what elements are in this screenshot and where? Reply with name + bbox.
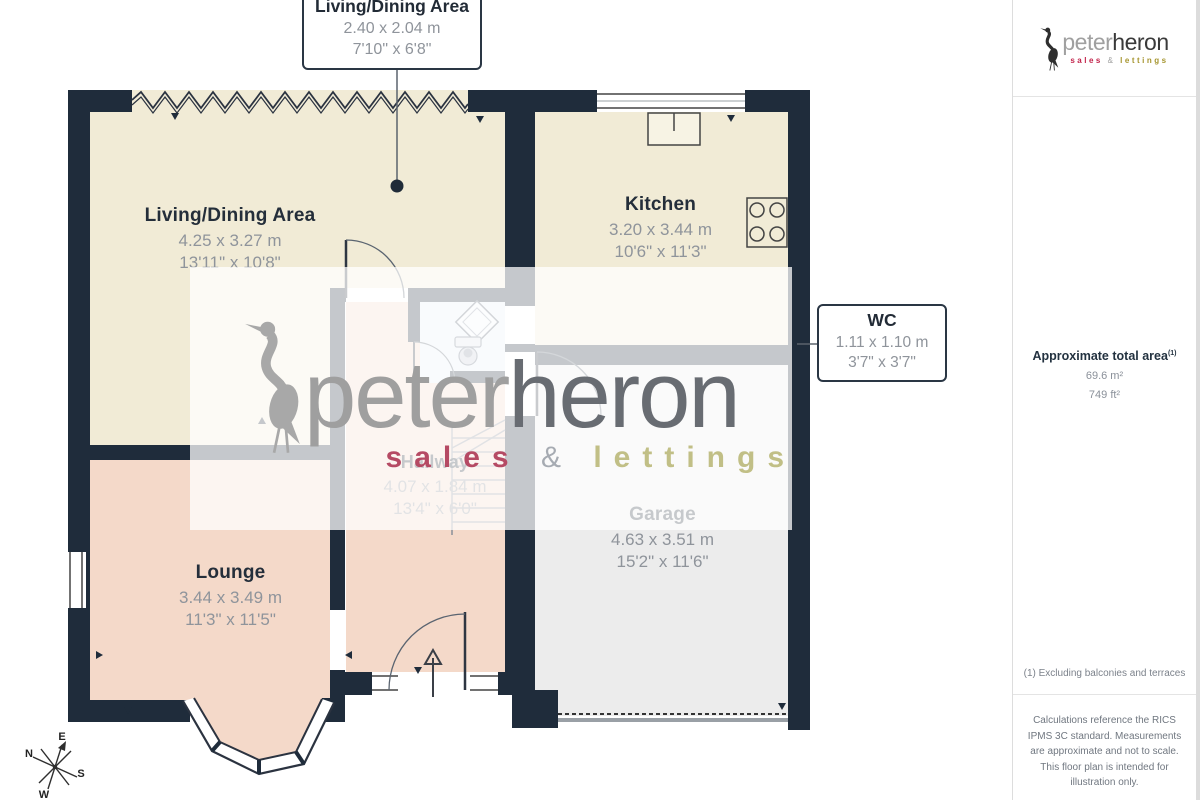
- heron-logo-icon: [1040, 25, 1059, 71]
- disclaimer-text: Calculations reference the RICS IPMS 3C …: [1021, 713, 1189, 791]
- kitchen-window: [597, 90, 745, 112]
- total-area-block: Approximate total area(1) 69.6 m² 749 ft…: [1013, 97, 1196, 652]
- room-label-lounge: Lounge 3.44 x 3.49 m 11'3" x 11'5": [118, 562, 343, 632]
- kitchen-title: Kitchen: [558, 194, 763, 216]
- lounge-imperial: 11'3" x 11'5": [118, 609, 343, 631]
- garage-imperial: 15'2" x 11'6": [570, 551, 755, 573]
- leader-dot: [391, 180, 404, 193]
- lounge-window: [66, 552, 86, 608]
- page-edge: [1196, 0, 1200, 800]
- compass-e: E: [58, 731, 65, 743]
- room-label-living: Living/Dining Area 4.25 x 3.27 m 13'11" …: [105, 205, 355, 275]
- kitchen-imperial: 10'6" x 11'3": [558, 241, 763, 263]
- info-sidebar: peterheron sales & lettings Approximate …: [1012, 0, 1196, 800]
- disclaimer-block: Calculations reference the RICS IPMS 3C …: [1013, 695, 1196, 800]
- kitchen-sink: [648, 113, 700, 145]
- living-metric: 4.25 x 3.27 m: [105, 230, 355, 252]
- compass-s: S: [77, 768, 84, 780]
- logo-brand: peterheron: [1062, 31, 1168, 54]
- kitchen-metric: 3.20 x 3.44 m: [558, 219, 763, 241]
- garage-metric: 4.63 x 3.51 m: [570, 529, 755, 551]
- area-footnote: (1) Excluding balconies and terraces: [1013, 652, 1196, 695]
- total-area-m2: 69.6 m²: [1086, 370, 1123, 382]
- agency-logo: peterheron sales & lettings: [1013, 0, 1196, 97]
- callout-wc: WC 1.11 x 1.10 m 3'7" x 3'7": [817, 304, 947, 382]
- compass-rose: N E S W: [25, 731, 85, 800]
- watermark-overlay: [190, 267, 792, 530]
- lounge-title: Lounge: [118, 562, 343, 584]
- callout-living-dining: Living/Dining Area 2.40 x 2.04 m 7'10" x…: [302, 0, 482, 70]
- total-area-ft2: 749 ft²: [1089, 389, 1120, 401]
- floor-plan-page: N E S W Living/Dining Area 4.25 x 3.27 m…: [0, 0, 1200, 800]
- living-title: Living/Dining Area: [105, 205, 355, 227]
- lounge-metric: 3.44 x 3.49 m: [118, 587, 343, 609]
- logo-tagline: sales & lettings: [1070, 56, 1168, 65]
- total-area-title: Approximate total area(1): [1032, 349, 1176, 363]
- compass-w: W: [39, 789, 50, 800]
- room-label-kitchen: Kitchen 3.20 x 3.44 m 10'6" x 11'3": [558, 194, 763, 264]
- compass-n: N: [25, 748, 33, 760]
